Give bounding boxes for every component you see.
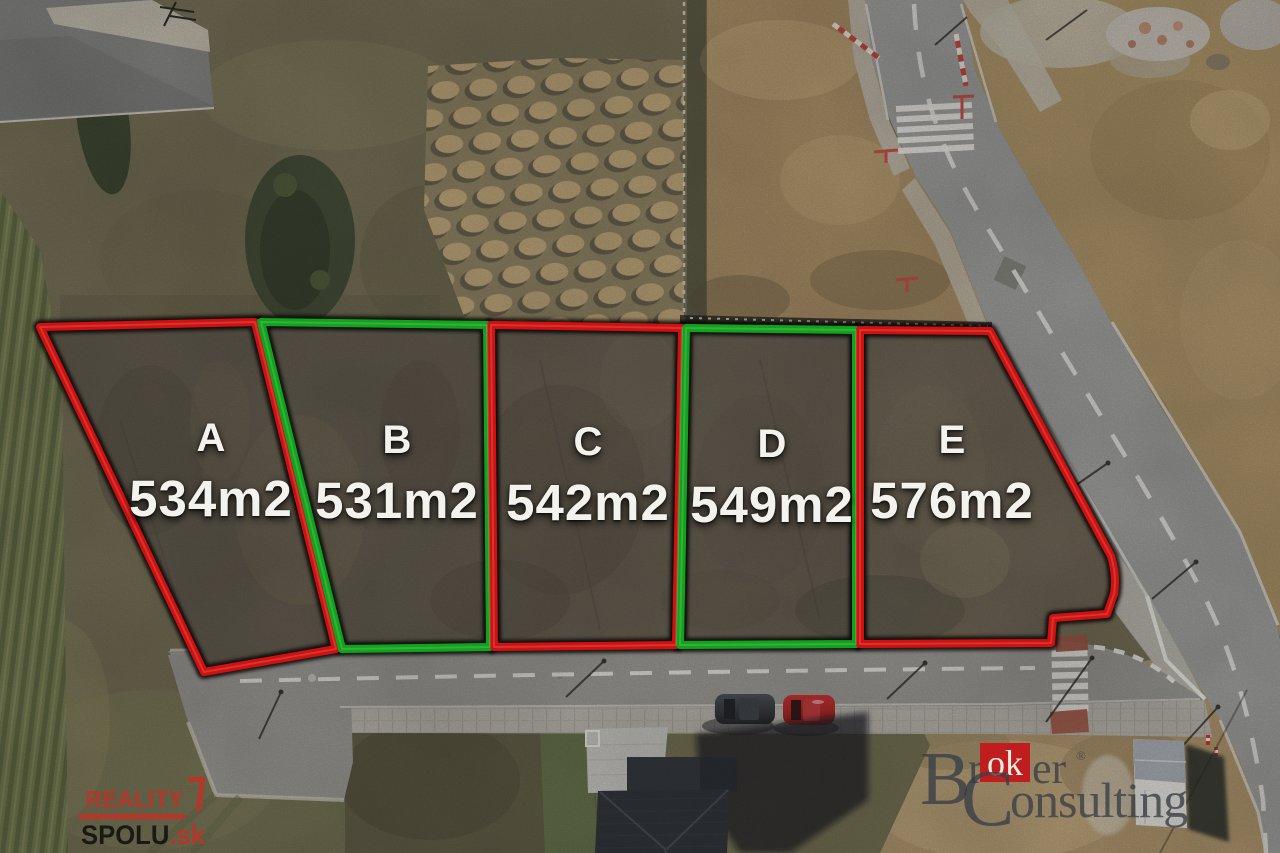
aerial-photo: A 534m2 B 531m2 C 542m2 D 549m2 E 576m2 …: [0, 0, 1280, 853]
texture-grain-light: [0, 0, 1280, 853]
photo-scene: [0, 0, 1280, 853]
